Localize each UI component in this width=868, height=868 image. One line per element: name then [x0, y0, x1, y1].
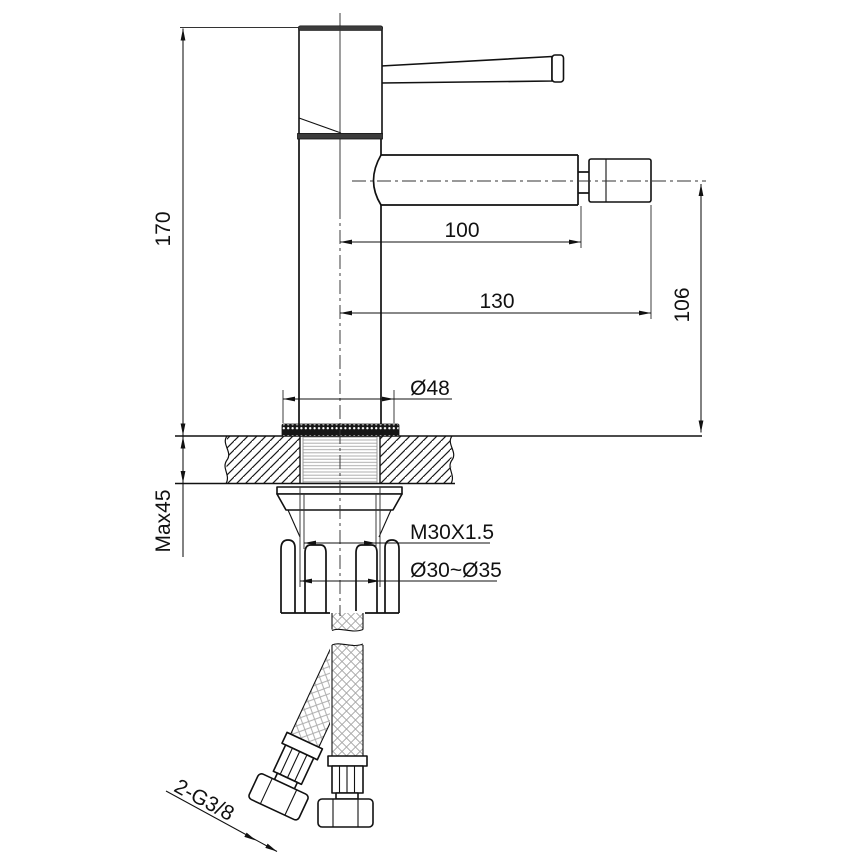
- base-gasket: [282, 424, 399, 436]
- handle-top-edge: [299, 26, 383, 31]
- label-hose-connection: 2-G3/8: [170, 775, 237, 826]
- handle-lever: [381, 55, 564, 83]
- shank-washer: [277, 487, 402, 494]
- hose-collar: [328, 756, 367, 766]
- label-spout-reach: 100: [444, 219, 479, 242]
- dimension-labels: 170 Max45 106 100 130 Ø48 M30X1.5 Ø30~Ø3…: [152, 211, 694, 825]
- label-hole-diameter: Ø30~Ø35: [410, 559, 502, 582]
- faucet-dimension-drawing: 170 Max45 106 100 130 Ø48 M30X1.5 Ø30~Ø3…: [0, 0, 868, 868]
- extension-lines: [180, 28, 651, 588]
- counter-deck-section: [175, 436, 702, 484]
- hose-nut-neck: [336, 793, 358, 799]
- label-spout-height: 106: [671, 287, 694, 322]
- deck-hatch-right: [380, 436, 452, 484]
- nut-inner-tab-right: [356, 545, 377, 613]
- handle-body: [299, 27, 382, 134]
- nut-outer-tab-right: [385, 540, 399, 613]
- shank-neck-left: [288, 510, 300, 537]
- label-base-diameter: Ø48: [410, 377, 450, 400]
- hose-braid-stub: [332, 613, 363, 630]
- leader-mid-arrow-g38: [244, 833, 257, 843]
- label-overall-height: 170: [152, 211, 175, 246]
- faucet-body: [282, 13, 706, 436]
- shank-neck-right: [379, 510, 391, 537]
- aerator: [589, 159, 651, 202]
- shank-flange: [277, 494, 402, 510]
- technical-drawing-canvas: 170 Max45 106 100 130 Ø48 M30X1.5 Ø30~Ø3…: [0, 0, 868, 868]
- lever-arm: [381, 57, 552, 84]
- label-overall-reach: 130: [479, 290, 514, 313]
- nut-inner-tab-left: [305, 545, 326, 613]
- nut-outer-tab-left: [281, 540, 295, 613]
- deck-hatch-left: [227, 436, 301, 484]
- hose-braid-main: [332, 645, 363, 757]
- lever-end-cap: [552, 55, 564, 82]
- collar-ring: [298, 134, 383, 140]
- label-thread-spec: M30X1.5: [410, 521, 494, 544]
- mounting-assembly: [277, 487, 402, 613]
- spout-body-fillet: [374, 155, 382, 205]
- hose-hex-nut-vertical: [318, 799, 373, 827]
- label-deck-thickness: Max45: [152, 489, 175, 552]
- spout: [352, 155, 706, 205]
